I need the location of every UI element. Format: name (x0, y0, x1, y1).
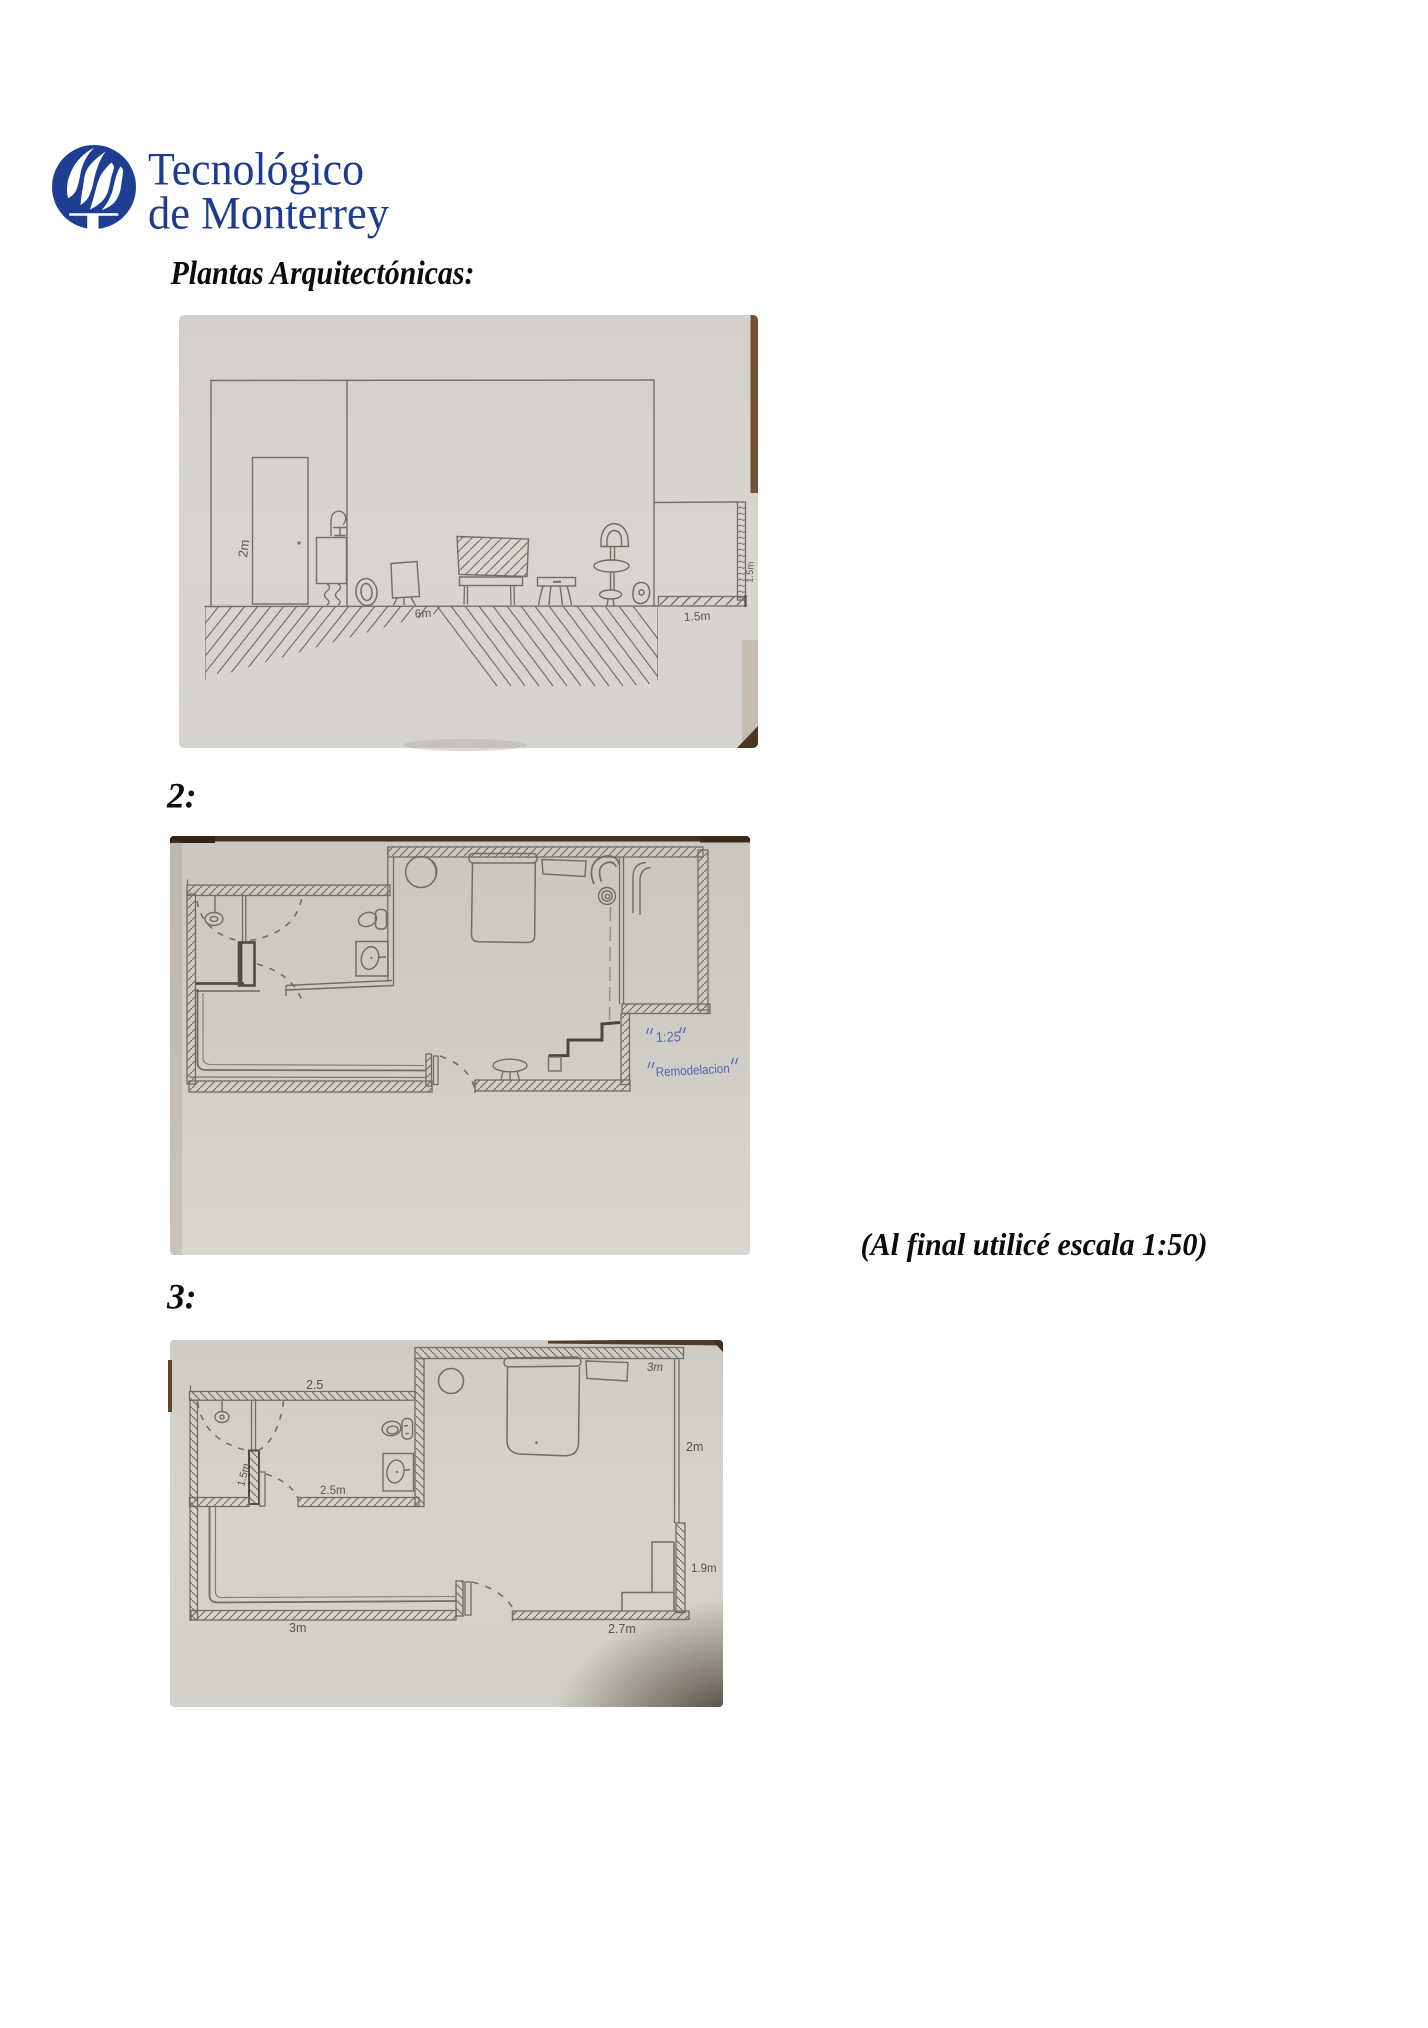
svg-text:6m: 6m (414, 606, 432, 621)
svg-text:2.5m: 2.5m (320, 1485, 346, 1497)
svg-text:(Al final utilicé escala 1:50): (Al final utilicé escala 1:50) (861, 1226, 1208, 1262)
svg-text:Plantas Arquitectónicas:: Plantas Arquitectónicas: (170, 255, 475, 292)
svg-text:2.5: 2.5 (306, 1378, 323, 1392)
svg-text:3:: 3: (166, 1277, 197, 1317)
svg-text:2:: 2: (166, 776, 197, 816)
svg-text:de Monterrey: de Monterrey (148, 188, 389, 240)
svg-text:1.9m: 1.9m (691, 1563, 717, 1575)
svg-text:1.5m: 1.5m (683, 609, 710, 624)
svg-text:2m: 2m (686, 1440, 703, 1454)
svg-text:1:25: 1:25 (656, 1028, 682, 1045)
svg-text:2m: 2m (235, 539, 252, 559)
svg-text:3m: 3m (289, 1621, 306, 1635)
svg-text:1.5m: 1.5m (745, 561, 757, 583)
svg-text:3m: 3m (647, 1362, 663, 1374)
